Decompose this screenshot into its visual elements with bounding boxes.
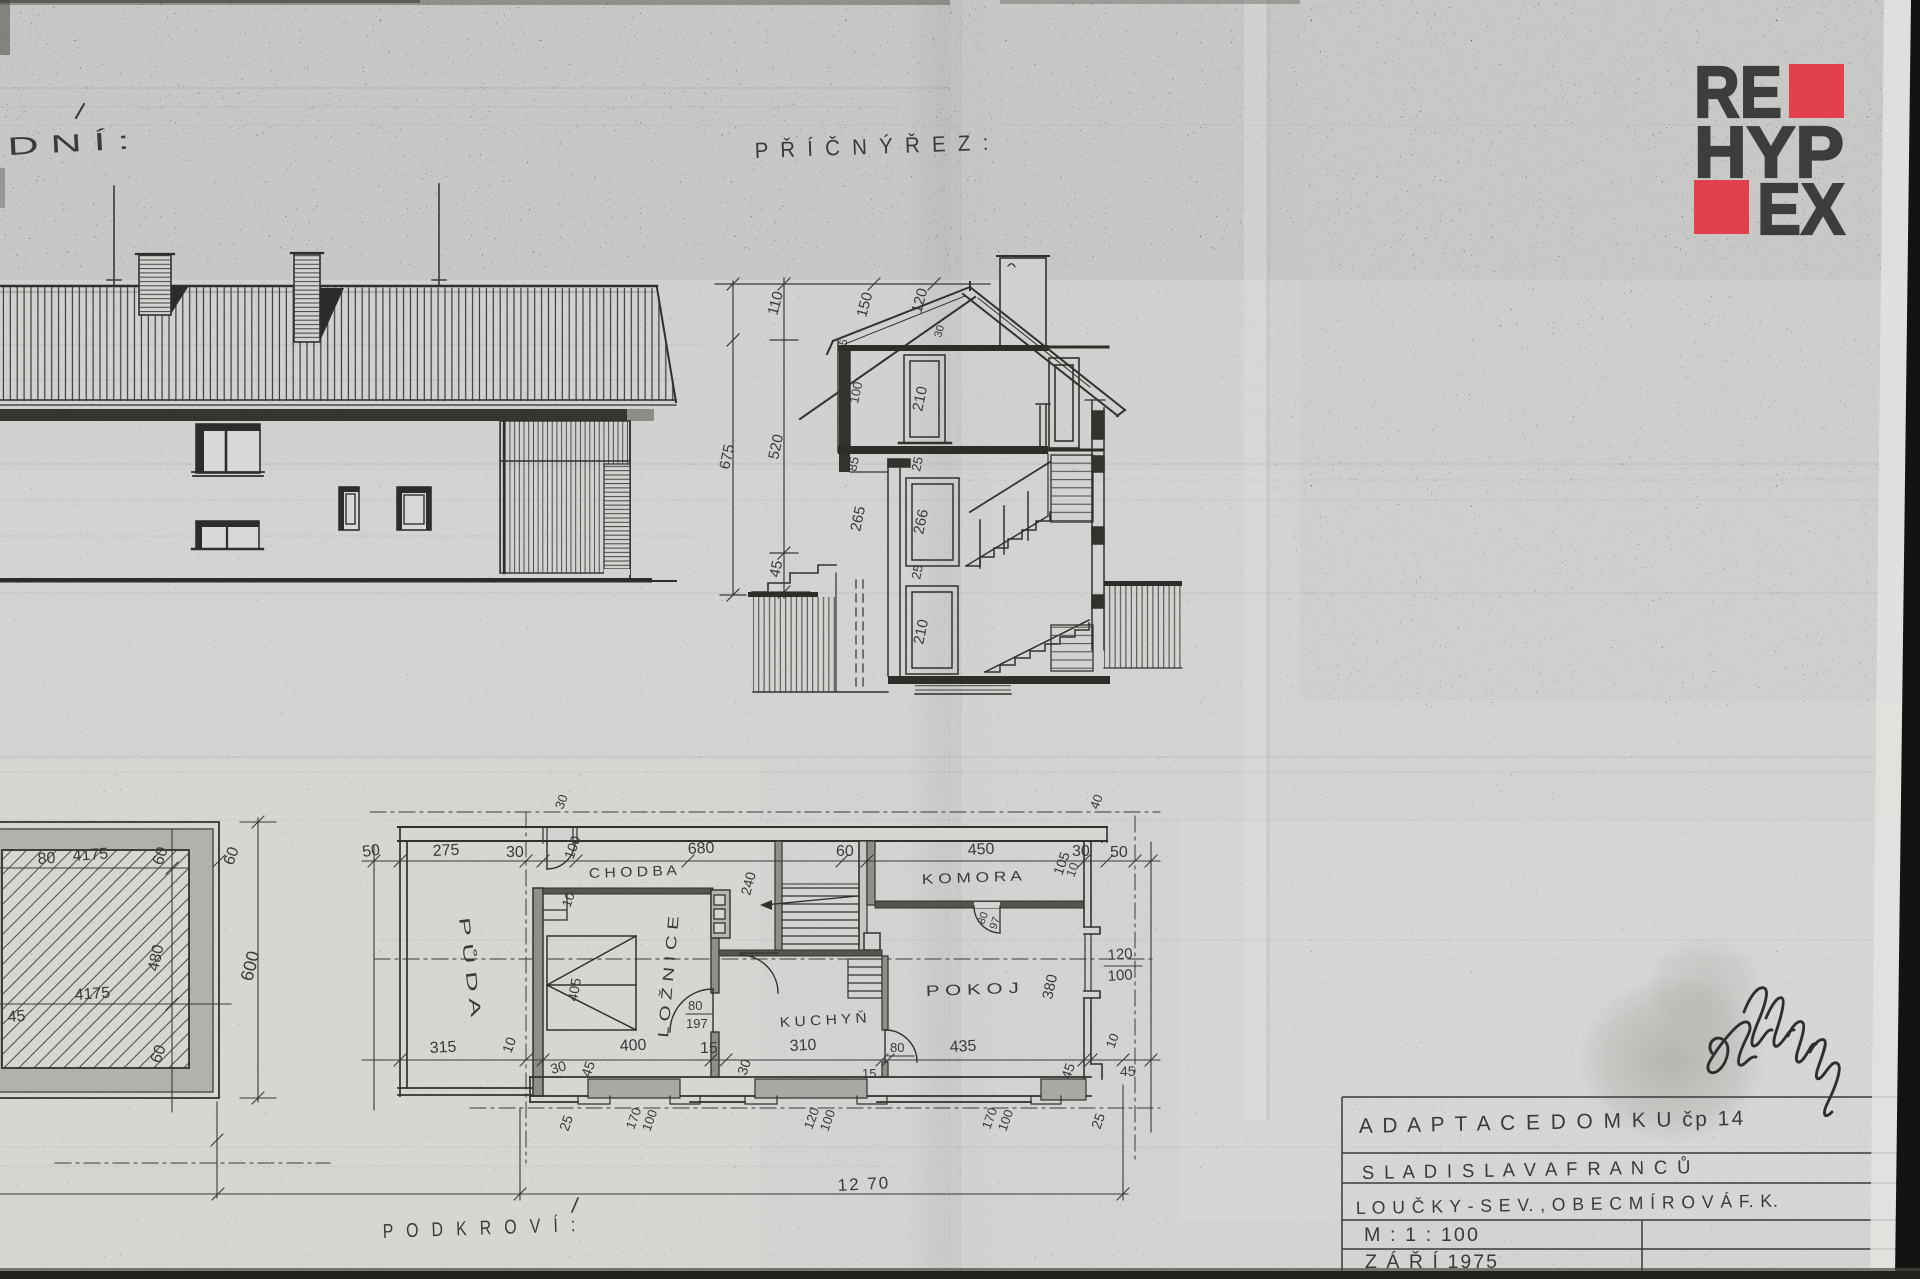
svg-text:80: 80	[37, 850, 56, 868]
svg-text:50: 50	[361, 842, 381, 861]
svg-text:45: 45	[766, 559, 786, 579]
svg-text:M : 1 : 100: M : 1 : 100	[1364, 1225, 1480, 1246]
svg-text:4175: 4175	[74, 985, 111, 1004]
svg-text:45: 45	[7, 1008, 26, 1026]
svg-text:120: 120	[1107, 945, 1133, 964]
svg-text:25: 25	[908, 563, 926, 580]
svg-text:275: 275	[432, 842, 460, 860]
svg-text:25: 25	[908, 455, 926, 472]
svg-text:197: 197	[686, 1016, 708, 1031]
svg-text:45: 45	[1120, 1063, 1136, 1079]
svg-text:30: 30	[1072, 843, 1090, 860]
svg-text:12 70: 12 70	[837, 1173, 890, 1195]
svg-text:400: 400	[619, 1037, 647, 1055]
svg-text:30: 30	[506, 844, 524, 861]
svg-text:15: 15	[700, 1040, 718, 1057]
svg-text:C H O D B A: C H O D B A	[589, 862, 678, 881]
svg-text:80: 80	[688, 998, 702, 1013]
svg-text:P O K O J: P O K O J	[926, 980, 1020, 1000]
svg-text:450: 450	[967, 841, 995, 859]
svg-text:100: 100	[1107, 966, 1133, 985]
svg-text:60: 60	[836, 843, 854, 860]
svg-text:310: 310	[789, 1037, 817, 1055]
svg-text:315: 315	[429, 1039, 457, 1057]
svg-text:4175: 4175	[72, 846, 109, 865]
svg-text:50: 50	[1110, 844, 1128, 861]
svg-text:EX: EX	[1757, 170, 1845, 250]
svg-text:80: 80	[890, 1040, 904, 1055]
svg-text:435: 435	[949, 1038, 977, 1056]
svg-text:680: 680	[687, 840, 715, 858]
